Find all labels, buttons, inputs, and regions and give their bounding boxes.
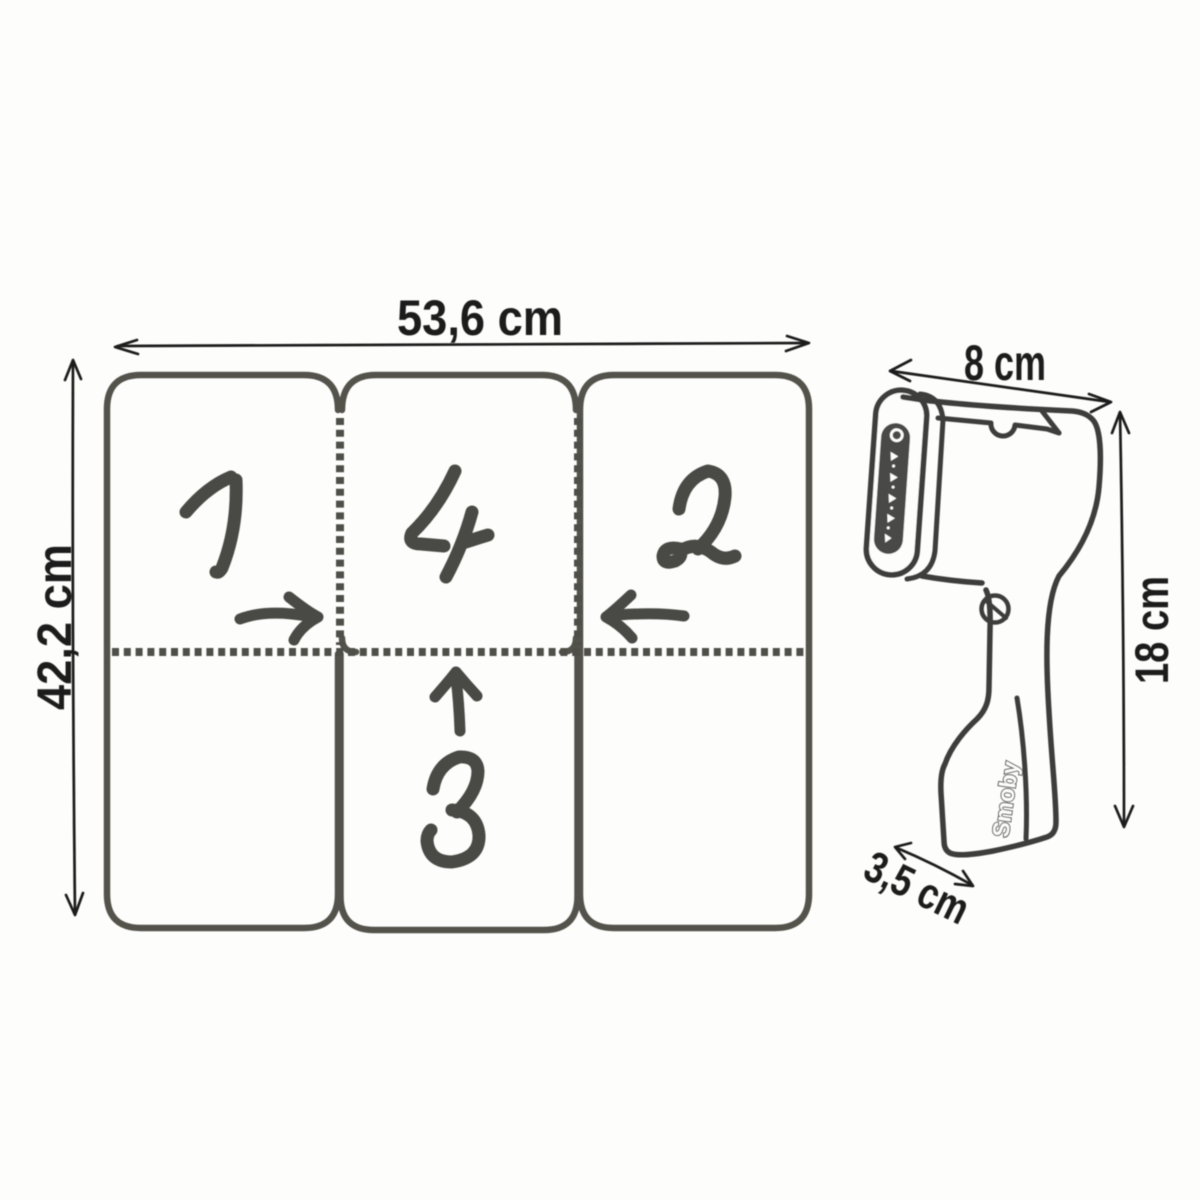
svg-text:42,2 cm: 42,2 cm bbox=[29, 544, 82, 710]
svg-text:8 cm: 8 cm bbox=[964, 335, 1046, 391]
svg-text:18 cm: 18 cm bbox=[1125, 576, 1178, 684]
svg-text:53,6 cm: 53,6 cm bbox=[397, 290, 563, 346]
